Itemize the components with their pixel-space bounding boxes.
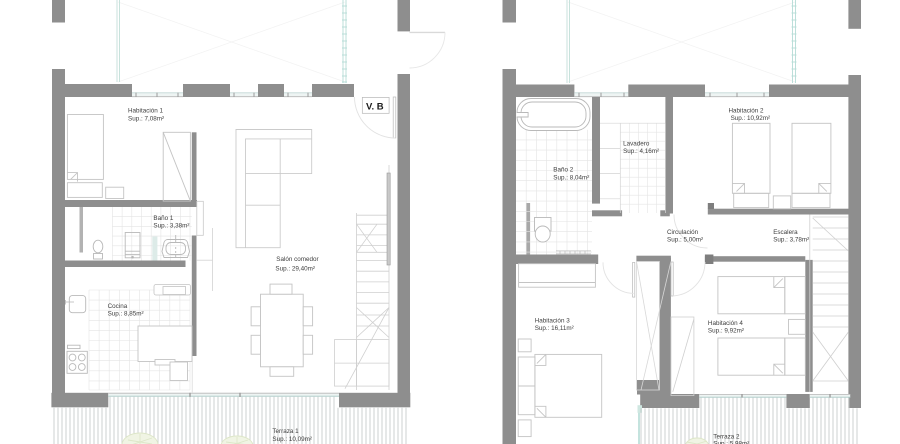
svg-text:Lavadero: Lavadero (623, 141, 650, 148)
svg-text:Cocina: Cocina (108, 303, 128, 310)
svg-text:Sup.: 9,92m²: Sup.: 9,92m² (708, 328, 744, 335)
svg-text:Sup.: 5,00m²: Sup.: 5,00m² (667, 237, 703, 244)
svg-text:Sup.: 16,11m²: Sup.: 16,11m² (535, 325, 574, 332)
svg-text:V. B: V. B (366, 101, 384, 112)
svg-text:Sup.: 5,98m²: Sup.: 5,98m² (713, 441, 749, 444)
svg-text:Terraza 1: Terraza 1 (272, 428, 299, 435)
svg-text:Circulación: Circulación (667, 229, 699, 236)
svg-text:Sup.: 8,85m²: Sup.: 8,85m² (108, 311, 144, 318)
svg-text:Sup.: 3,38m²: Sup.: 3,38m² (153, 223, 189, 230)
svg-text:Habitación 2: Habitación 2 (729, 107, 765, 114)
svg-text:Sup.: 10,09m²: Sup.: 10,09m² (272, 436, 312, 443)
svg-text:Terraza 2: Terraza 2 (713, 433, 740, 440)
svg-text:Sup.: 10,92m²: Sup.: 10,92m² (731, 115, 771, 122)
svg-text:Escalera: Escalera (773, 229, 798, 236)
svg-text:Sup.: 29,40m²: Sup.: 29,40m² (275, 266, 315, 273)
svg-text:Sup.: 3,78m²: Sup.: 3,78m² (773, 237, 809, 244)
svg-text:Sup.: 8,04m²: Sup.: 8,04m² (553, 174, 589, 181)
svg-text:Baño 1: Baño 1 (153, 215, 173, 222)
svg-text:Habitación 3: Habitación 3 (535, 317, 571, 324)
svg-text:Salón comedor: Salón comedor (276, 256, 318, 263)
svg-text:Habitación 1: Habitación 1 (128, 108, 164, 115)
svg-text:Sup.: 7,08m²: Sup.: 7,08m² (128, 116, 164, 123)
svg-text:Baño 2: Baño 2 (553, 167, 573, 174)
svg-text:Sup.: 4,16m²: Sup.: 4,16m² (623, 148, 659, 155)
svg-text:Habitación 4: Habitación 4 (708, 320, 744, 327)
